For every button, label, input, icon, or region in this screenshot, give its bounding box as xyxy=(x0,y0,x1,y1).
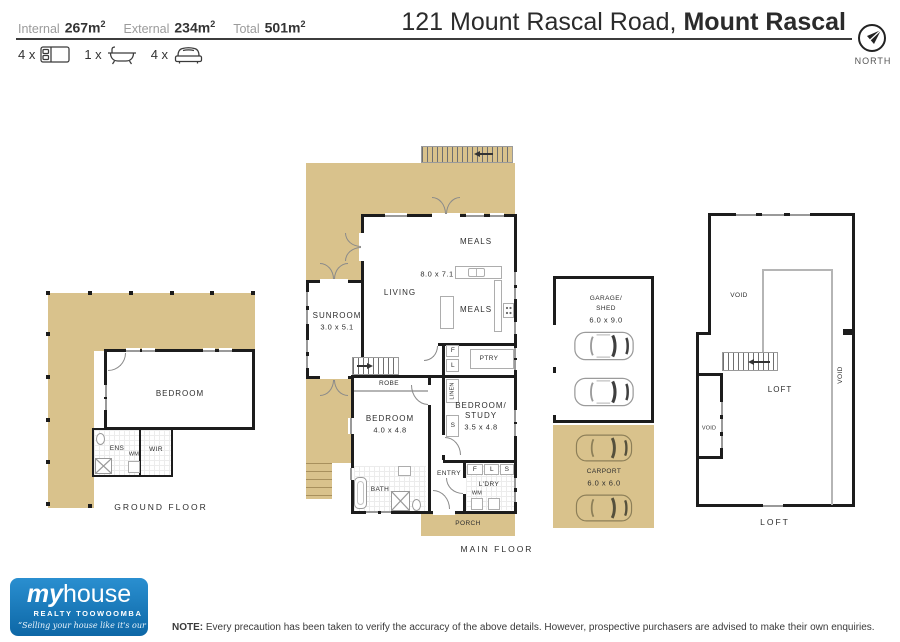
logo-subtitle: REALTY TOOWOOMBA xyxy=(10,609,148,618)
logo-wordmark: myhouse xyxy=(10,582,148,607)
disclaimer: NOTE: Every precaution has been taken to… xyxy=(172,622,882,633)
logo-tagline: “Selling your house like it's our house.… xyxy=(18,621,148,630)
floor-plan-page: Internal 267m2 External 234m2 Total 501m… xyxy=(0,0,900,642)
disclaimer-label: NOTE: xyxy=(172,622,203,633)
disclaimer-text: Every precaution has been taken to verif… xyxy=(206,622,875,633)
agency-logo: myhouse REALTY TOOWOOMBA “Selling your h… xyxy=(10,578,148,636)
logo-house: house xyxy=(63,580,131,608)
logo-my: my xyxy=(27,580,63,608)
footer: myhouse REALTY TOOWOOMBA “Selling your h… xyxy=(0,0,900,642)
